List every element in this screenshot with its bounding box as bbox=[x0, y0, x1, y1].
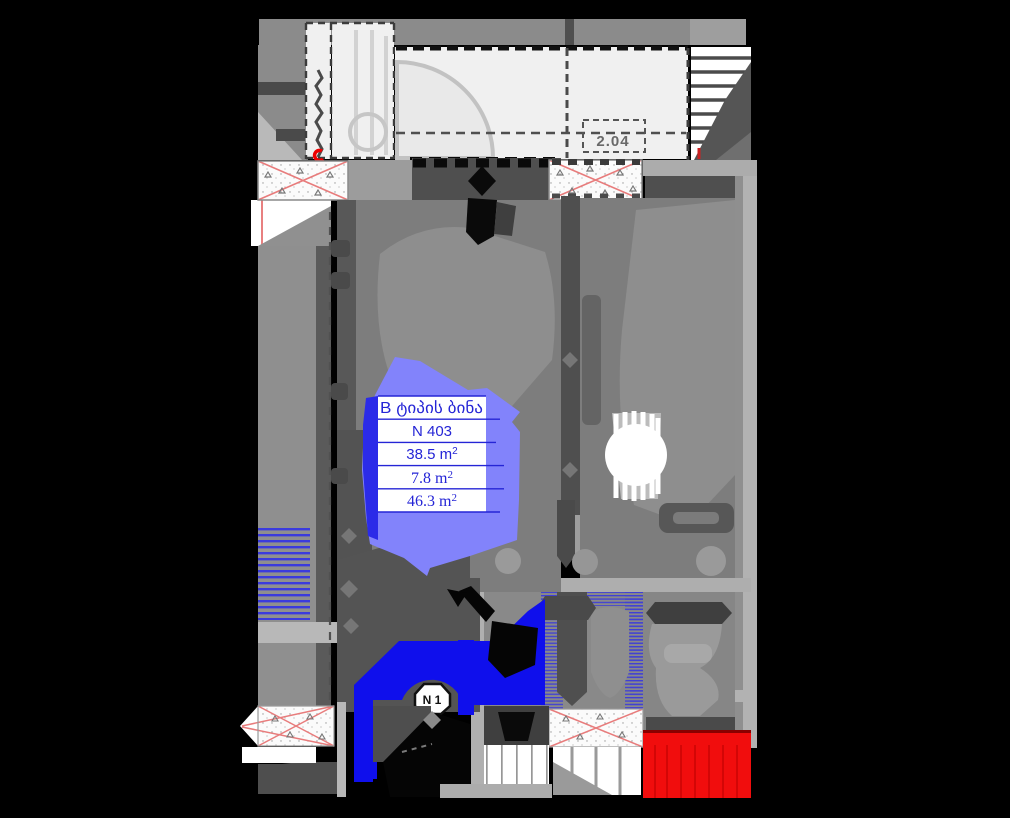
svg-text:7.8 m2: 7.8 m2 bbox=[411, 469, 453, 487]
svg-text:46.3 m2: 46.3 m2 bbox=[407, 492, 457, 510]
svg-text:B ტიპის ბინა: B ტიპის ბინა bbox=[380, 399, 483, 417]
svg-text:2.04: 2.04 bbox=[596, 133, 629, 150]
svg-text:N 1: N 1 bbox=[423, 693, 442, 707]
svg-text:N 403: N 403 bbox=[412, 423, 452, 440]
svg-text:38.5 m2: 38.5 m2 bbox=[406, 446, 458, 463]
